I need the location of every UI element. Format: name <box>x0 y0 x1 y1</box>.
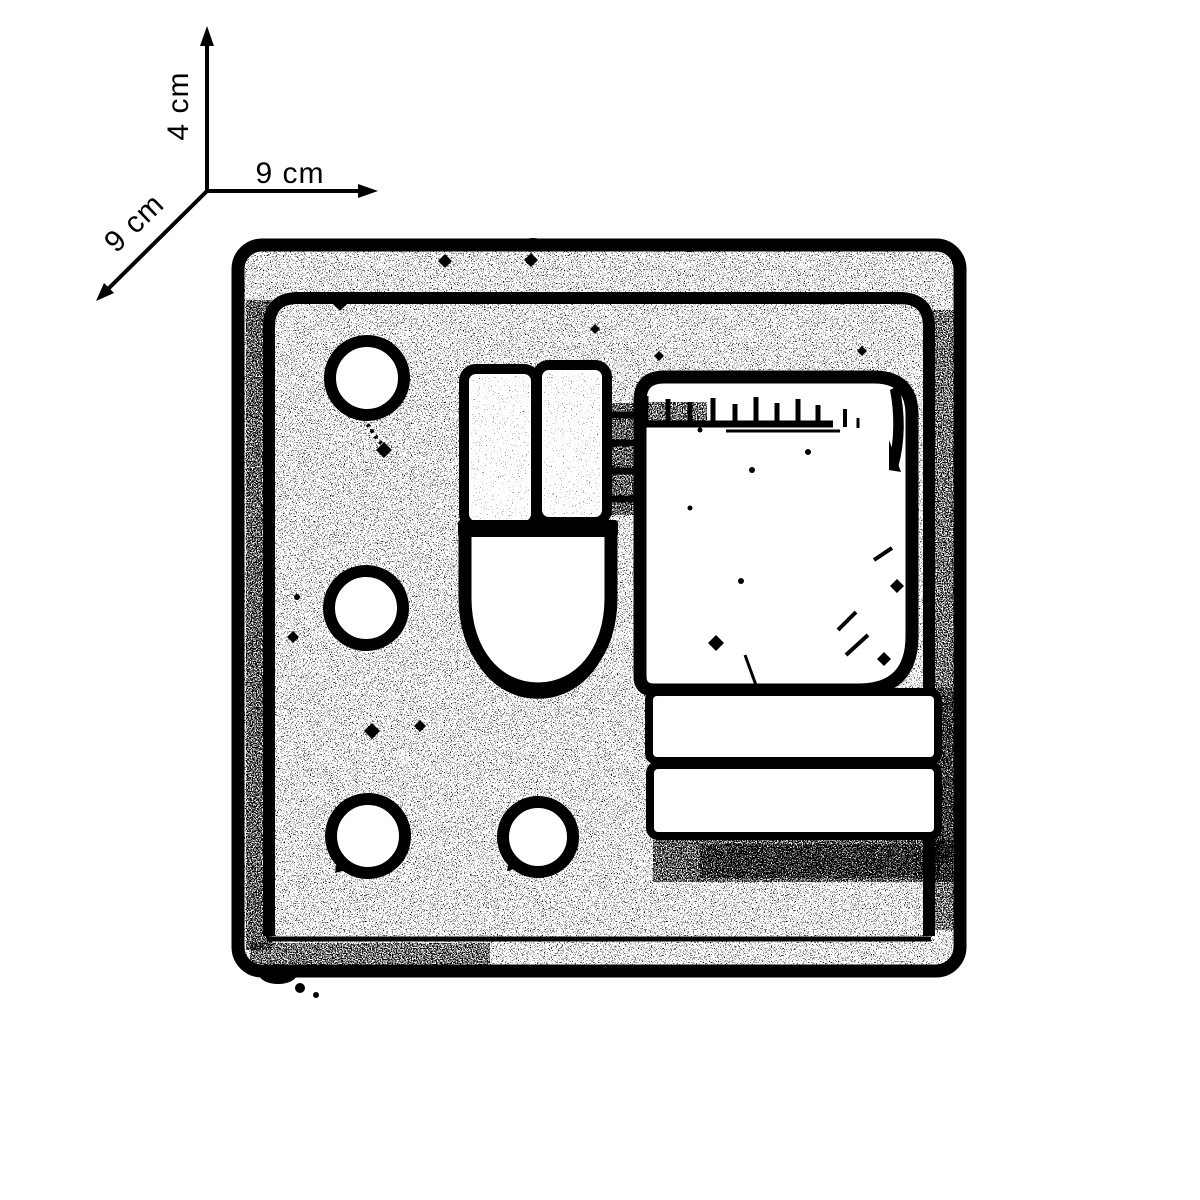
width-axis-arrowhead-icon <box>358 184 378 198</box>
bar-compartment-top <box>649 692 938 761</box>
hole-middle-left <box>329 571 403 645</box>
height-dimension-label: 4 cm <box>162 71 195 140</box>
figure-canvas: 4 cm 9 cm 9 cm <box>0 0 1200 1200</box>
artifact-figure: 4 cm 9 cm 9 cm <box>0 0 1200 1200</box>
u-compartment-outline <box>465 527 611 689</box>
artifact-drawing <box>238 238 960 998</box>
bar-compartments <box>649 688 958 882</box>
ladder-marks <box>604 403 641 515</box>
large-square-compartment <box>640 377 912 690</box>
small-rect-compartments <box>464 365 607 526</box>
u-compartment-top-bar <box>458 520 618 537</box>
depth-dimension-label: 9 cm <box>98 187 171 259</box>
width-dimension-label: 9 cm <box>255 157 324 190</box>
height-axis-arrowhead-icon <box>200 26 214 46</box>
bar-compartment-bottom <box>650 765 938 836</box>
hole-top-left <box>330 341 404 415</box>
hole-bottom-left <box>331 799 405 873</box>
